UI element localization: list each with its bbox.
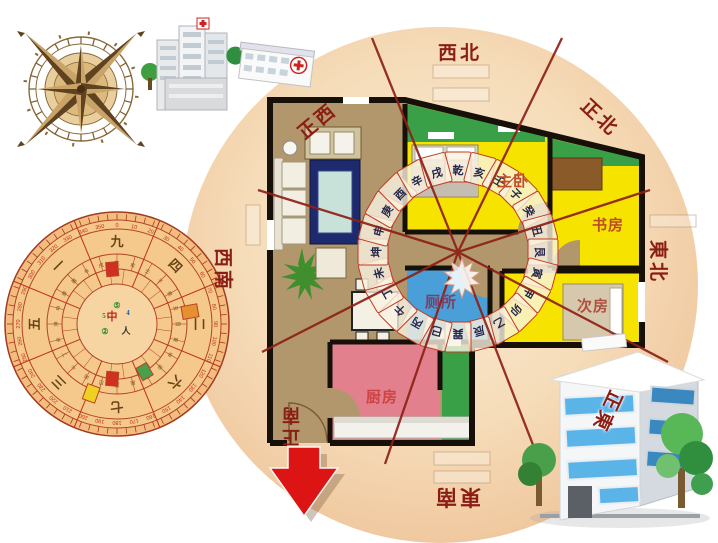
svg-text:二: 二 xyxy=(192,317,207,330)
window-slat xyxy=(267,220,274,250)
svg-text:270: 270 xyxy=(16,319,22,328)
svg-text:0: 0 xyxy=(115,223,118,229)
entrance-arrow xyxy=(270,447,345,522)
svg-text:⑤: ⑤ xyxy=(113,301,120,310)
window-slat xyxy=(428,132,454,139)
rug-center xyxy=(318,171,352,233)
window-slat xyxy=(638,282,645,322)
window-slat xyxy=(343,97,369,104)
svg-text:巽: 巽 xyxy=(453,327,464,340)
room-label-study: 书房 xyxy=(592,214,624,235)
svg-text:人: 人 xyxy=(120,325,131,336)
office-building xyxy=(518,334,713,528)
svg-text:坤: 坤 xyxy=(369,247,383,258)
svg-text:坤: 坤 xyxy=(53,321,60,326)
svg-text:②: ② xyxy=(101,327,108,336)
master-window-greenery xyxy=(407,104,545,142)
room-label-toilet: 厕所 xyxy=(425,291,457,312)
direction-label-northwest: 西北 xyxy=(438,38,482,65)
svg-text:九: 九 xyxy=(109,234,123,249)
luopan-compass: 0102030405060708090100110120130140150160… xyxy=(5,212,229,436)
svg-text:4: 4 xyxy=(126,309,130,317)
svg-text:艮: 艮 xyxy=(533,247,547,259)
svg-text:乾: 乾 xyxy=(453,163,464,177)
direction-label-southeast: 東南 xyxy=(433,483,481,513)
room-label-second-bedroom: 次房 xyxy=(577,295,609,316)
svg-text:90: 90 xyxy=(212,321,218,327)
svg-text:80: 80 xyxy=(210,303,217,310)
compass-rose xyxy=(17,31,145,147)
scene-graphics: 乾亥壬子癸丑艮寅甲卯乙辰巽巳丙午丁未坤申庚酉辛戌 010203040506070… xyxy=(0,0,718,537)
svg-text:10: 10 xyxy=(130,224,137,231)
direction-label-northeast: 東北 xyxy=(646,240,673,284)
room-label-kitchen: 厨房 xyxy=(366,386,398,407)
tv-cabinet-door xyxy=(334,132,354,154)
fengshui-diagram: 乾亥壬子癸丑艮寅甲卯乙辰巽巳丙午丁未坤申庚酉辛戌 010203040506070… xyxy=(0,0,718,537)
room-label-master-bedroom: 主卧 xyxy=(497,170,529,191)
direction-label-southwest: 西南 xyxy=(211,248,238,292)
wall-lamp xyxy=(283,141,297,155)
sofa-cushion xyxy=(282,162,306,188)
study-desk xyxy=(552,158,602,190)
side-table xyxy=(316,248,346,278)
city-buildings xyxy=(141,18,227,110)
direction-label-south: 正南 xyxy=(279,403,305,447)
hospital-building xyxy=(224,41,315,87)
svg-text:七: 七 xyxy=(110,399,123,414)
sofa-cushion xyxy=(282,218,306,244)
svg-text:五: 五 xyxy=(27,317,42,330)
svg-text:180: 180 xyxy=(112,419,121,425)
svg-text:5: 5 xyxy=(102,312,106,320)
svg-text:艮: 艮 xyxy=(174,321,180,326)
entrance-door xyxy=(568,486,592,518)
svg-text:中: 中 xyxy=(107,309,118,323)
